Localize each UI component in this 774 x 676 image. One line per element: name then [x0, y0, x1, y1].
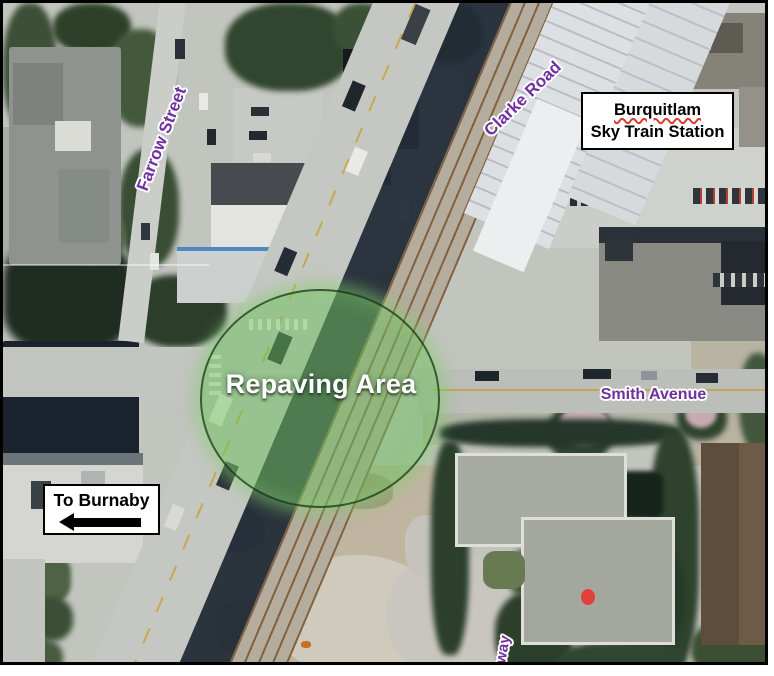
- arrow-left-icon: [59, 515, 145, 530]
- side-road: [3, 559, 45, 665]
- red-marker: [581, 589, 595, 605]
- car: [475, 371, 499, 381]
- arrow-left-shaft: [73, 518, 141, 527]
- car: [253, 153, 271, 162]
- building-roof: [13, 63, 63, 125]
- to-burnaby-label: To Burnaby: [45, 490, 158, 511]
- car: [207, 129, 216, 145]
- equipment: [301, 641, 311, 648]
- car-row: [693, 188, 768, 204]
- station-callout: Burquitlam Sky Train Station: [581, 92, 734, 150]
- station-callout-line2: Sky Train Station: [591, 121, 725, 143]
- building-roof: [59, 169, 109, 243]
- trees: [439, 419, 681, 447]
- car: [249, 131, 267, 140]
- building: [739, 87, 768, 147]
- courtyard-lawn: [483, 551, 525, 589]
- roof-detail: [177, 247, 271, 251]
- car: [175, 39, 185, 59]
- car: [251, 107, 269, 116]
- map-frame: Repaving Area Farrow Street Clarke Road …: [0, 0, 768, 665]
- building-roof: [3, 453, 143, 465]
- street-label-smith: Smith Avenue: [591, 386, 716, 404]
- car: [583, 369, 611, 379]
- car: [150, 253, 159, 270]
- brown-building-roof: [701, 443, 739, 645]
- to-burnaby-callout: To Burnaby: [43, 484, 160, 535]
- page: Repaving Area Farrow Street Clarke Road …: [0, 0, 774, 676]
- parcel-line: [3, 264, 209, 266]
- building-roof: [55, 121, 91, 151]
- condo-building: [521, 517, 675, 645]
- car: [641, 371, 657, 380]
- car-row: [713, 273, 768, 287]
- car: [696, 373, 718, 383]
- station-callout-line1: Burquitlam: [614, 99, 701, 121]
- arrow-left-head: [59, 513, 74, 531]
- car: [199, 93, 208, 110]
- trees: [225, 3, 353, 91]
- repaving-area-label: Repaving Area: [201, 369, 441, 400]
- building-roof: [605, 239, 633, 261]
- car: [141, 223, 150, 240]
